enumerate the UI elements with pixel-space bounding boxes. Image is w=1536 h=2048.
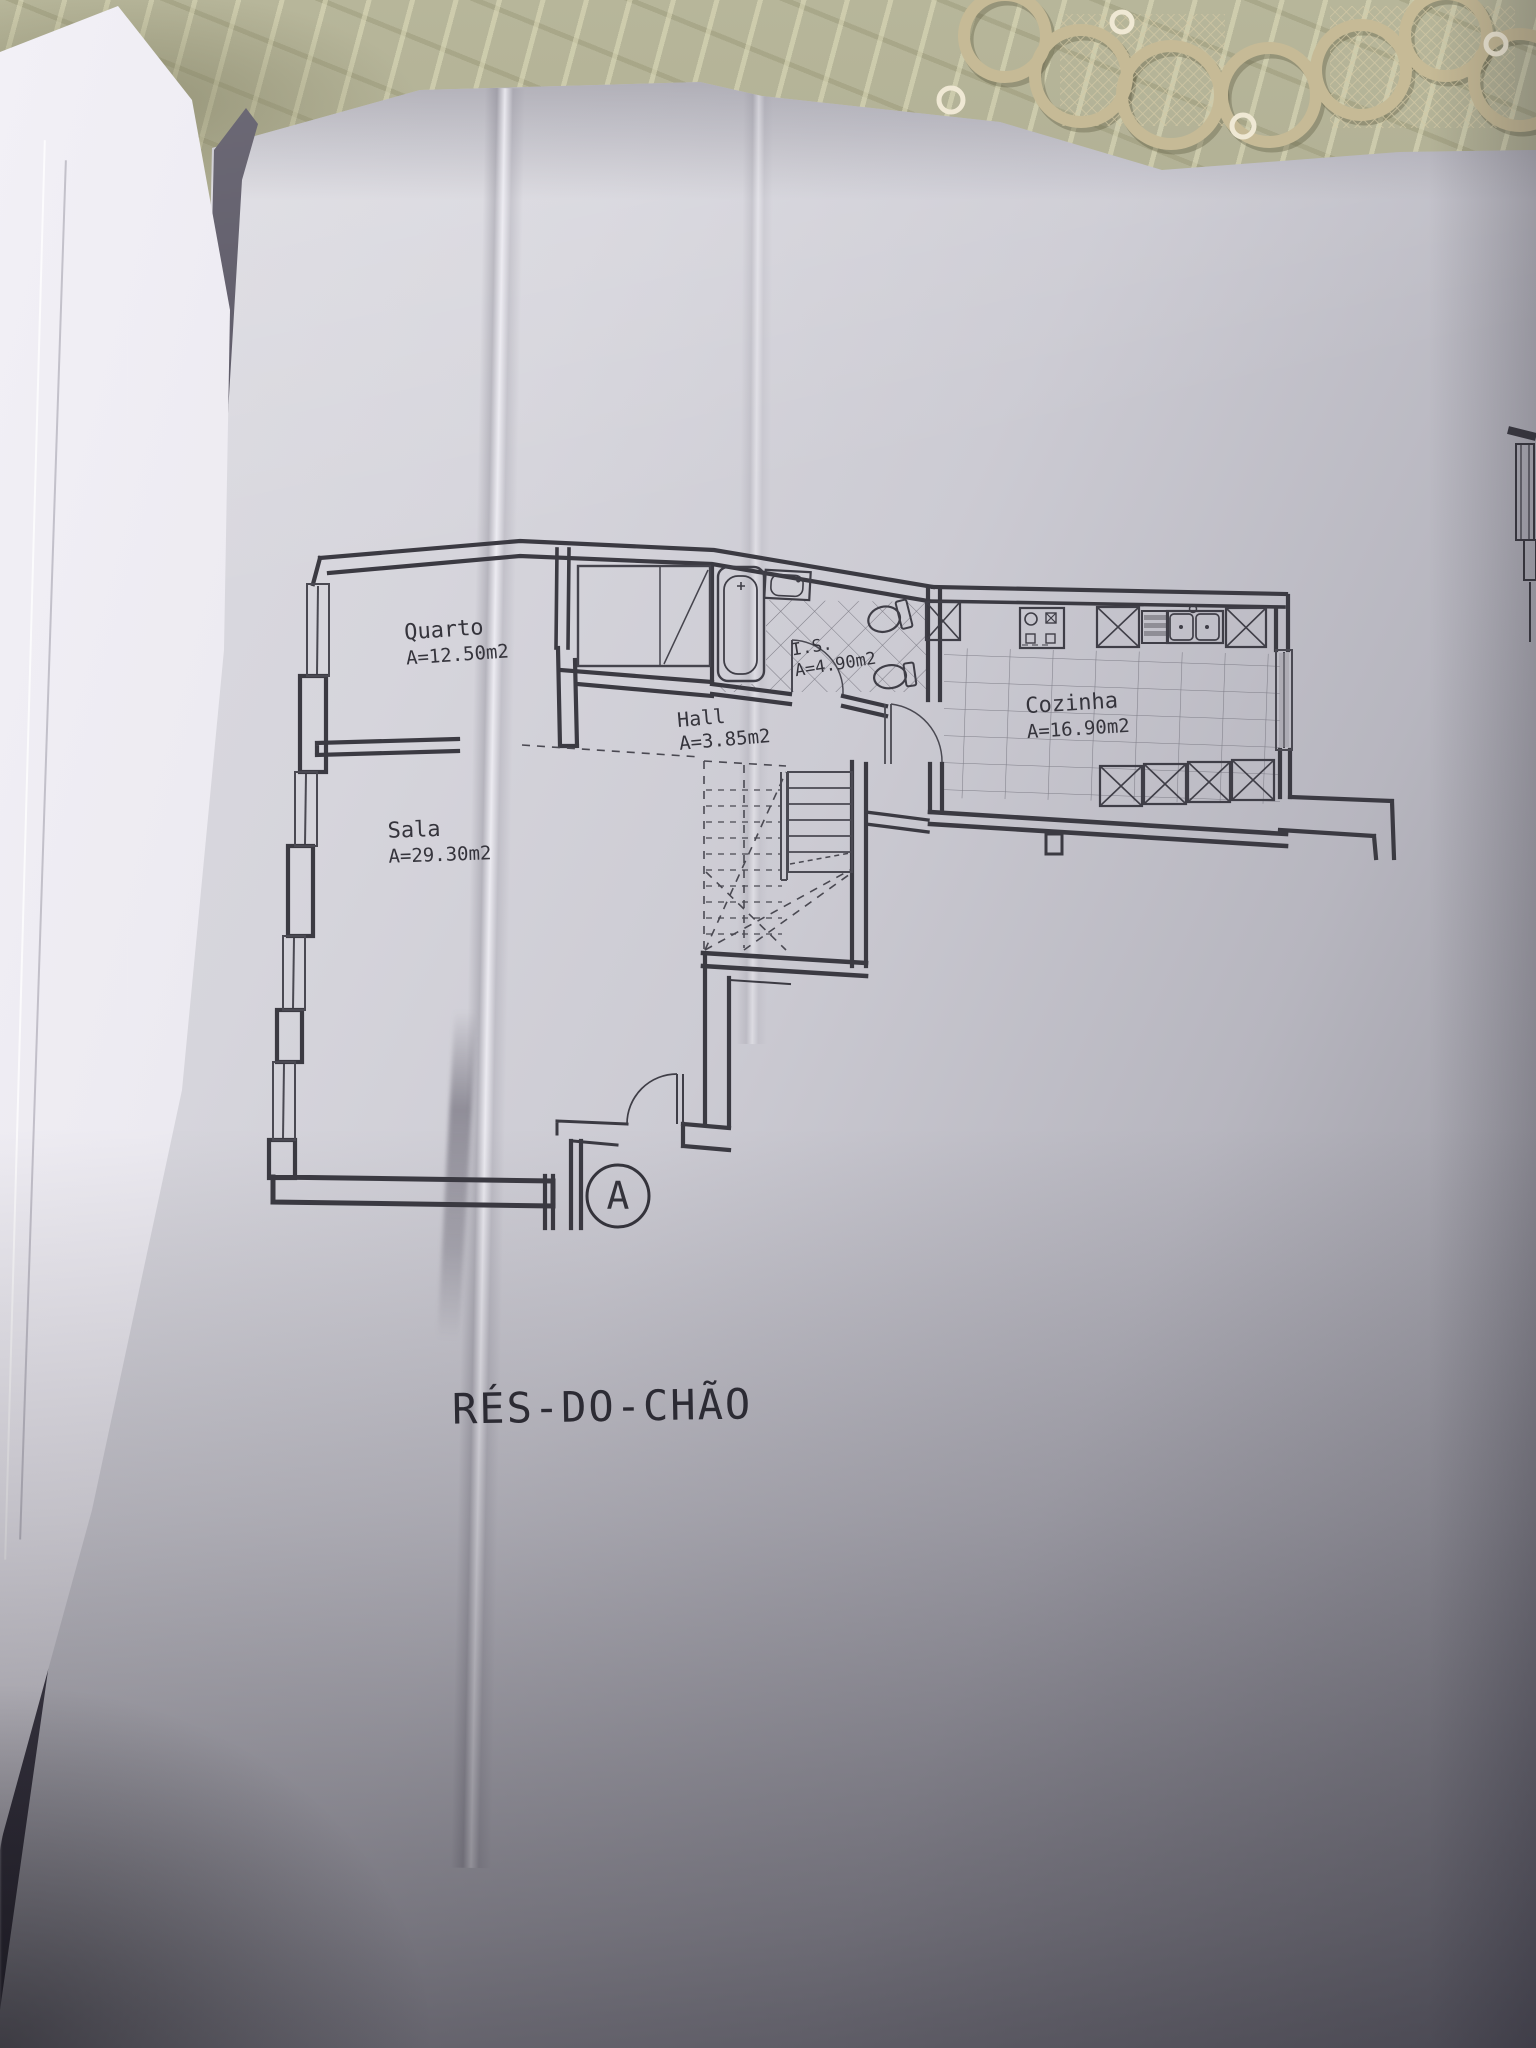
room-label-quarto: Quarto A=12.50m2 xyxy=(403,612,509,670)
room-label-sala: Sala A=29.30m2 xyxy=(387,814,492,869)
stove-icon xyxy=(1020,608,1064,648)
wardrobe-icon xyxy=(578,566,710,666)
photo-of-floor-plan: A Quarto A=12.50m2 I.S. A=4.90m2 Hall A=… xyxy=(0,0,1536,2048)
shaft-column-icon xyxy=(926,602,960,640)
kitchen-door-icon xyxy=(885,704,942,764)
floor-plan-title: RÉS-DO-CHÃO xyxy=(452,1379,753,1433)
oven-counter-icon xyxy=(1097,607,1139,647)
room-label-cozinha: Cozinha A=16.90m2 xyxy=(1025,687,1131,744)
dishwasher-icon xyxy=(1142,611,1168,643)
section-marker-letter: A xyxy=(607,1174,630,1218)
room-area: A=29.30m2 xyxy=(388,842,492,869)
room-label-hall: Hall A=3.85m2 xyxy=(676,700,771,757)
room-name: Sala xyxy=(387,814,491,845)
bathtub-icon xyxy=(718,567,764,681)
kitchen-sink-icon xyxy=(1167,606,1223,644)
entrance-door-icon xyxy=(627,1074,683,1124)
section-marker: A xyxy=(587,1165,649,1227)
adjacent-drawing-fragment xyxy=(1508,430,1536,642)
stairs-icon xyxy=(522,745,852,952)
